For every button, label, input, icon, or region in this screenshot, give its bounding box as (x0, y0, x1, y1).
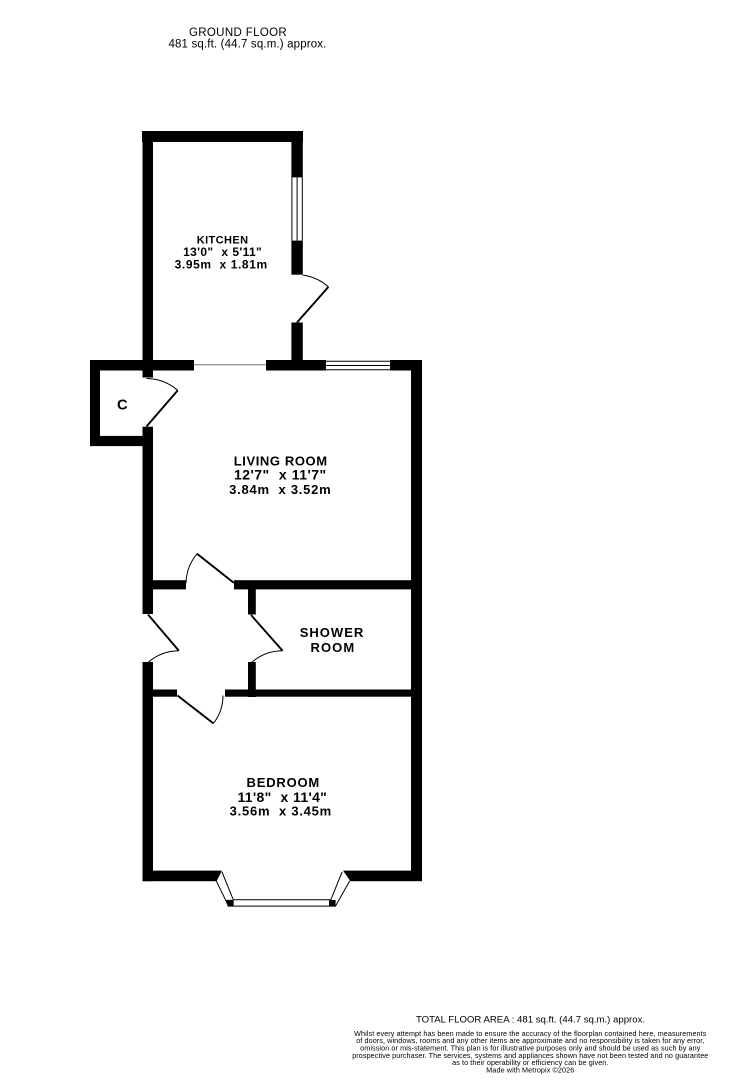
svg-text:SHOWER: SHOWER (300, 625, 365, 640)
svg-text:12'7" x 11'7": 12'7" x 11'7" (234, 466, 327, 482)
svg-text:TOTAL FLOOR AREA : 481 sq.ft.: TOTAL FLOOR AREA : 481 sq.ft. (44.7 sq.m… (416, 1015, 645, 1026)
svg-text:481 sq.ft. (44.7 sq.m.) approx: 481 sq.ft. (44.7 sq.m.) approx. (168, 39, 326, 51)
svg-text:ROOM: ROOM (310, 640, 355, 655)
svg-text:C: C (117, 398, 128, 414)
svg-text:11'8" x 11'4": 11'8" x 11'4" (237, 789, 327, 805)
svg-text:3.56m x 3.45m: 3.56m x 3.45m (230, 804, 332, 819)
svg-text:GROUND FLOOR: GROUND FLOOR (189, 27, 287, 39)
svg-text:3.84m x 3.52m: 3.84m x 3.52m (229, 482, 331, 497)
svg-text:3.95m x 1.81m: 3.95m x 1.81m (175, 258, 268, 272)
svg-text:Made with Metropix ©2026: Made with Metropix ©2026 (486, 1066, 574, 1075)
svg-text:BEDROOM: BEDROOM (247, 775, 321, 790)
